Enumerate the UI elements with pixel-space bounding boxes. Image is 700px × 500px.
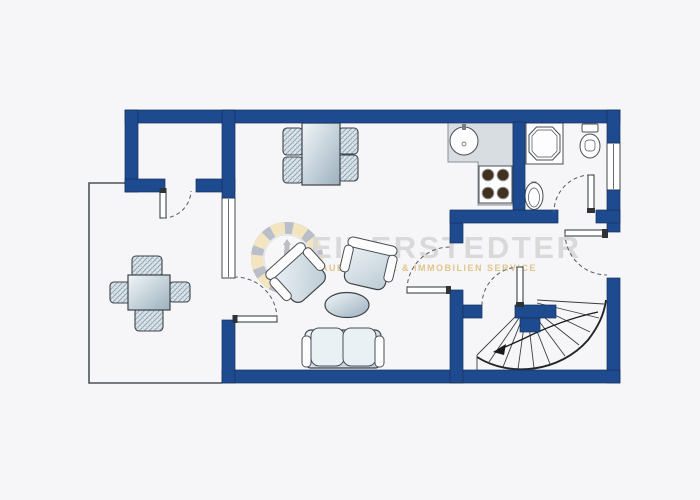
shower-symbol xyxy=(526,123,563,164)
outer-wall-top xyxy=(125,110,620,123)
sofa-symbol xyxy=(302,328,384,368)
storage-room-wall xyxy=(125,179,165,192)
washbasin-symbol xyxy=(525,182,543,210)
hall-wall xyxy=(450,290,463,383)
floor-plan-svg: EIDERSTEDTER BAUELEMENTE & IMMOBILIEN SE… xyxy=(0,0,700,500)
kitchen-bath-wall xyxy=(450,210,558,223)
outer-wall-right xyxy=(607,278,620,383)
kitchen-bath-wall xyxy=(596,210,620,223)
living-west-wall xyxy=(222,110,235,198)
patio-chair-symbol xyxy=(135,308,163,331)
dining-table-symbol xyxy=(302,123,340,185)
dining-chair-symbol xyxy=(283,157,303,183)
window-symbol xyxy=(222,198,235,278)
dining-chair-symbol xyxy=(283,128,303,155)
outer-wall-right xyxy=(607,110,620,143)
floor-plan-image: EIDERSTEDTER BAUELEMENTE & IMMOBILIEN SE… xyxy=(0,0,700,500)
kitchen-bath-divider-wall xyxy=(513,122,525,210)
dining-chair-symbol xyxy=(338,128,358,154)
patio-table-symbol xyxy=(128,275,170,310)
coffee-table-symbol xyxy=(325,293,369,318)
window-symbol xyxy=(607,143,620,190)
stove-symbol xyxy=(479,166,512,203)
dining-chair-symbol xyxy=(338,155,358,181)
toilet-symbol xyxy=(580,124,600,158)
stair-room-wall xyxy=(463,305,482,318)
living-west-wall xyxy=(222,320,235,383)
dining-set-symbol xyxy=(283,123,358,185)
outer-wall-bottom xyxy=(222,370,620,383)
patio-chair-symbol xyxy=(169,282,190,302)
stair-room-wall xyxy=(520,318,540,332)
